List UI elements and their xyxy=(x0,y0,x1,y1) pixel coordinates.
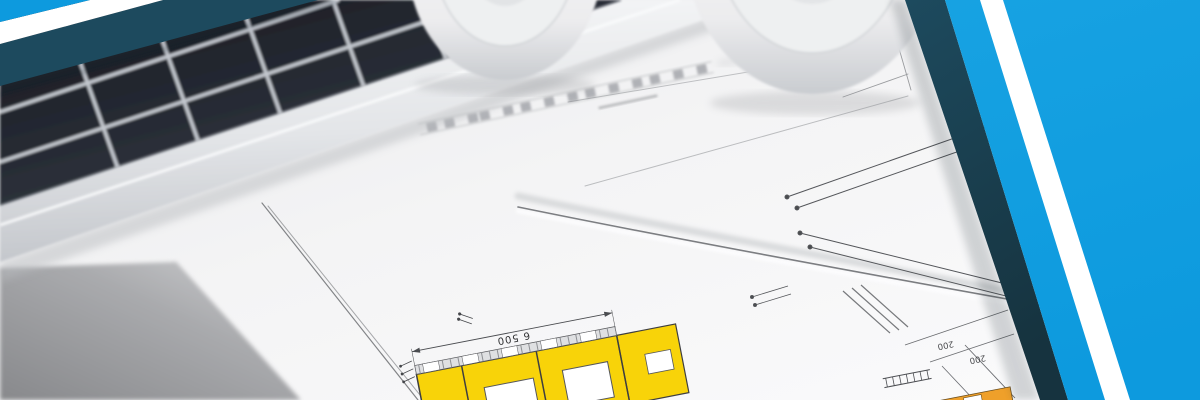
hero-banner: 200 200 6 500 xyxy=(0,0,1200,400)
banner-photo-scene: 200 200 6 500 xyxy=(0,0,1200,400)
